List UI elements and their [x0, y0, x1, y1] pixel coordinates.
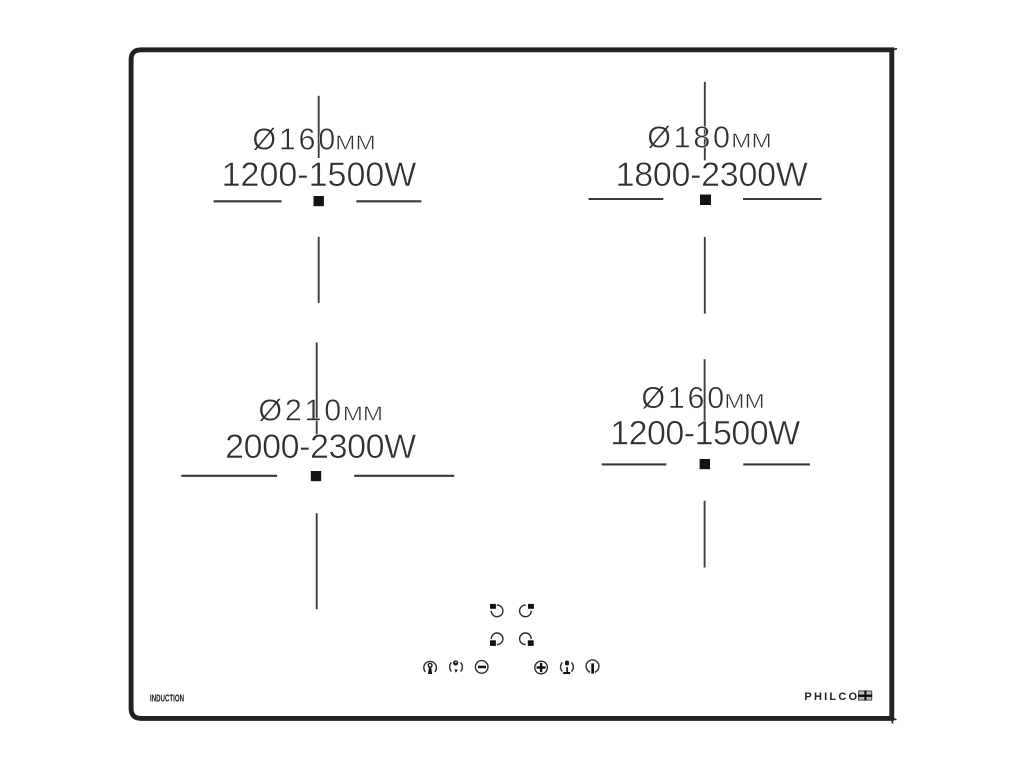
svg-text:MM: MM [724, 390, 764, 413]
svg-text:Ø180: Ø180 [647, 120, 730, 154]
svg-text:PHILCO: PHILCO [804, 691, 857, 703]
svg-text:1200-1500W: 1200-1500W [610, 414, 800, 452]
svg-text:MM: MM [343, 402, 383, 425]
svg-text:Ø160: Ø160 [641, 381, 724, 415]
svg-text:INDUCTION: INDUCTION [150, 693, 184, 705]
svg-text:Ø210: Ø210 [258, 394, 341, 428]
svg-text:1800-2300W: 1800-2300W [616, 156, 808, 194]
svg-text:1200-1500W: 1200-1500W [222, 156, 417, 194]
svg-text:MM: MM [335, 131, 375, 154]
svg-text:Ø160: Ø160 [252, 123, 335, 157]
svg-text:MM: MM [731, 129, 771, 152]
svg-text:2000-2300W: 2000-2300W [225, 428, 416, 466]
